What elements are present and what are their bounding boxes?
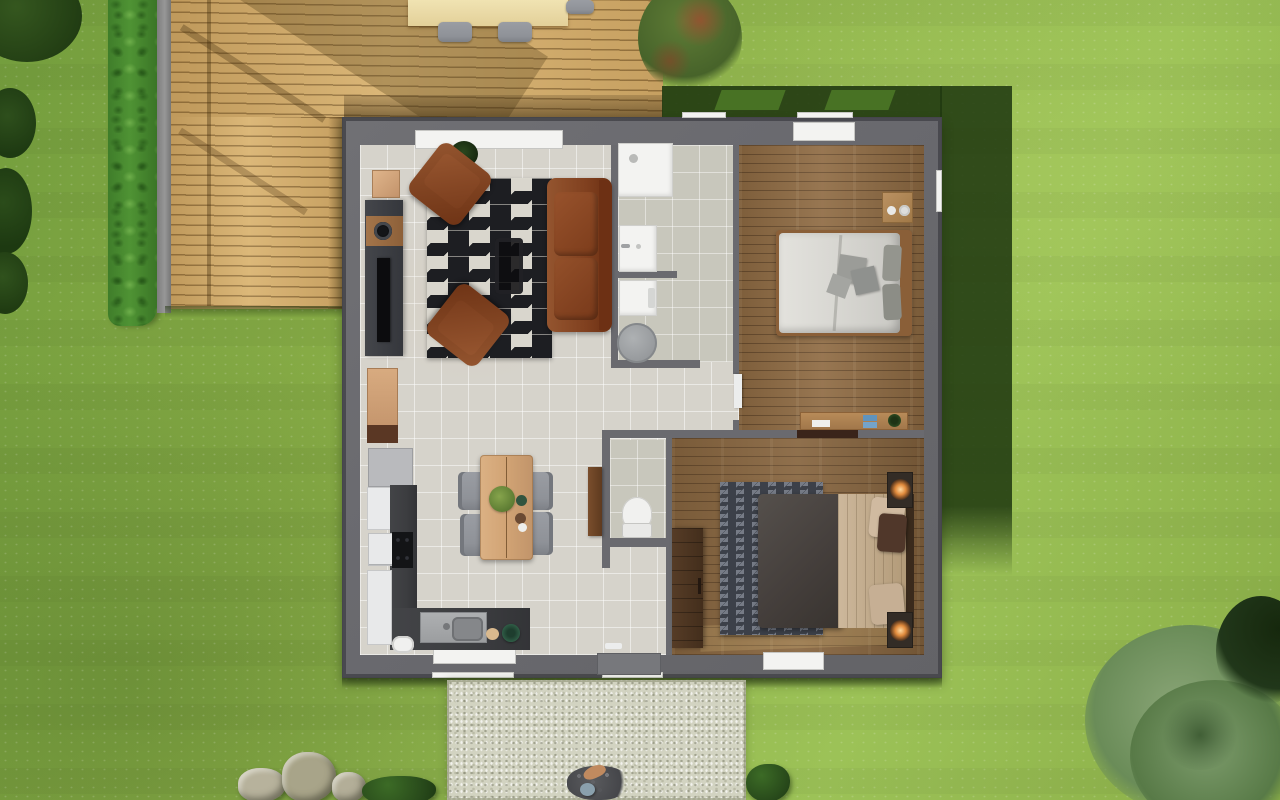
bush-right-of-path bbox=[746, 764, 790, 800]
house-shadow-on-deck bbox=[344, 95, 663, 118]
bread-item bbox=[486, 628, 499, 640]
wall-wc-left bbox=[602, 432, 610, 538]
wall-wc-left-stub bbox=[602, 547, 610, 568]
window-living-top bbox=[415, 130, 563, 149]
kitchen-cabinet-white bbox=[367, 570, 392, 645]
sill-bathroom-top bbox=[682, 112, 726, 118]
wall-bedroom1-left bbox=[733, 145, 739, 374]
tv-screen bbox=[377, 258, 390, 342]
window-bedroom2-bottom bbox=[763, 652, 824, 670]
bedroom1-door-open bbox=[734, 374, 742, 408]
front-door-handle bbox=[605, 643, 622, 649]
green-plate bbox=[502, 624, 520, 642]
table-centerpiece-plant bbox=[489, 486, 515, 512]
rock-3 bbox=[332, 772, 366, 800]
wall-horizontal-bedrooms bbox=[602, 430, 924, 438]
rock-1 bbox=[238, 768, 286, 800]
sofa-backrest bbox=[599, 180, 612, 330]
bush-red-tint-2 bbox=[648, 40, 692, 82]
desk-blue-item-2 bbox=[863, 422, 877, 428]
tree-canopy-top-left bbox=[0, 0, 82, 62]
coffee-table bbox=[495, 238, 523, 294]
tree-branch-texture bbox=[1160, 700, 1240, 770]
desk-paper bbox=[812, 420, 830, 427]
window-bedroom1-top bbox=[793, 122, 855, 141]
bed2-duvet-dark bbox=[758, 494, 844, 628]
sofa-cushion-2 bbox=[554, 258, 598, 320]
washbasin-drain bbox=[636, 244, 641, 249]
sideboard-square bbox=[372, 170, 400, 198]
lamp-glow-top bbox=[890, 479, 911, 500]
bed1-pillow-1 bbox=[882, 245, 902, 282]
shower-tray bbox=[618, 143, 673, 197]
tree-canopy-left-3 bbox=[0, 252, 28, 314]
oven bbox=[368, 533, 393, 566]
shower-drain bbox=[629, 154, 638, 163]
table-dark-plate bbox=[516, 495, 527, 506]
house-shadow-right-fade bbox=[940, 506, 1012, 576]
bedroom1-nightstand-cup-2 bbox=[899, 205, 910, 216]
hedge bbox=[108, 0, 157, 326]
outdoor-chair-3 bbox=[566, 0, 594, 14]
outdoor-chair-1 bbox=[438, 22, 472, 42]
table-white-cup bbox=[518, 523, 527, 532]
cooktop bbox=[392, 532, 413, 568]
bed1-pillow-2 bbox=[882, 284, 902, 321]
toilet-tank bbox=[622, 523, 652, 538]
scene-aerial-floorplan bbox=[0, 0, 1280, 800]
shadow-gap-2 bbox=[824, 90, 895, 110]
outdoor-table bbox=[408, 0, 568, 26]
deck-grass-shadow bbox=[165, 306, 347, 318]
washing-machine-door bbox=[648, 288, 655, 308]
wall-bathroom-stub bbox=[618, 271, 677, 278]
path-figure-blue bbox=[580, 783, 595, 796]
front-door bbox=[597, 653, 661, 675]
sink-faucet bbox=[443, 623, 450, 630]
bush-bottom-left bbox=[362, 776, 436, 800]
sill-bedroom1-right bbox=[936, 170, 942, 212]
bed2-headboard bbox=[905, 494, 914, 628]
kitchen-bookshelf-base bbox=[367, 425, 398, 443]
laundry-basket bbox=[617, 323, 657, 363]
deck-edge-kerb bbox=[157, 0, 171, 313]
kitchen-mat bbox=[392, 636, 414, 653]
wardrobe-handle bbox=[698, 578, 701, 594]
desk-blue-item-1 bbox=[863, 415, 877, 421]
sill-kitchen-bottom bbox=[432, 672, 514, 678]
bedroom1-nightstand-cup-1 bbox=[887, 206, 896, 215]
sink-bowl bbox=[452, 617, 483, 641]
armchair-1-cushion bbox=[422, 152, 482, 211]
wc-door-open bbox=[588, 467, 602, 536]
wall-clock bbox=[374, 222, 392, 240]
lamp-glow-bottom bbox=[890, 620, 911, 641]
rock-2 bbox=[282, 752, 336, 800]
washbasin-faucet bbox=[621, 244, 630, 248]
sill-bedroom1-top bbox=[797, 112, 853, 118]
bedroom2-door-lintel bbox=[797, 430, 858, 438]
desk-plant bbox=[888, 414, 901, 427]
tree-canopy-left-2 bbox=[0, 168, 32, 254]
bed2-pillow-dark bbox=[877, 513, 908, 553]
sofa-cushion-1 bbox=[554, 192, 598, 256]
outdoor-chair-2 bbox=[498, 22, 532, 42]
tree-canopy-left-1 bbox=[0, 88, 36, 158]
wall-bathroom-bottom bbox=[611, 360, 700, 368]
house-shadow-right bbox=[940, 86, 1012, 506]
wall-wc-bottom bbox=[602, 538, 667, 547]
shadow-gap-1 bbox=[714, 90, 785, 110]
kitchen-cabinet-gray bbox=[368, 448, 413, 487]
wall-bathroom-left bbox=[611, 145, 618, 368]
